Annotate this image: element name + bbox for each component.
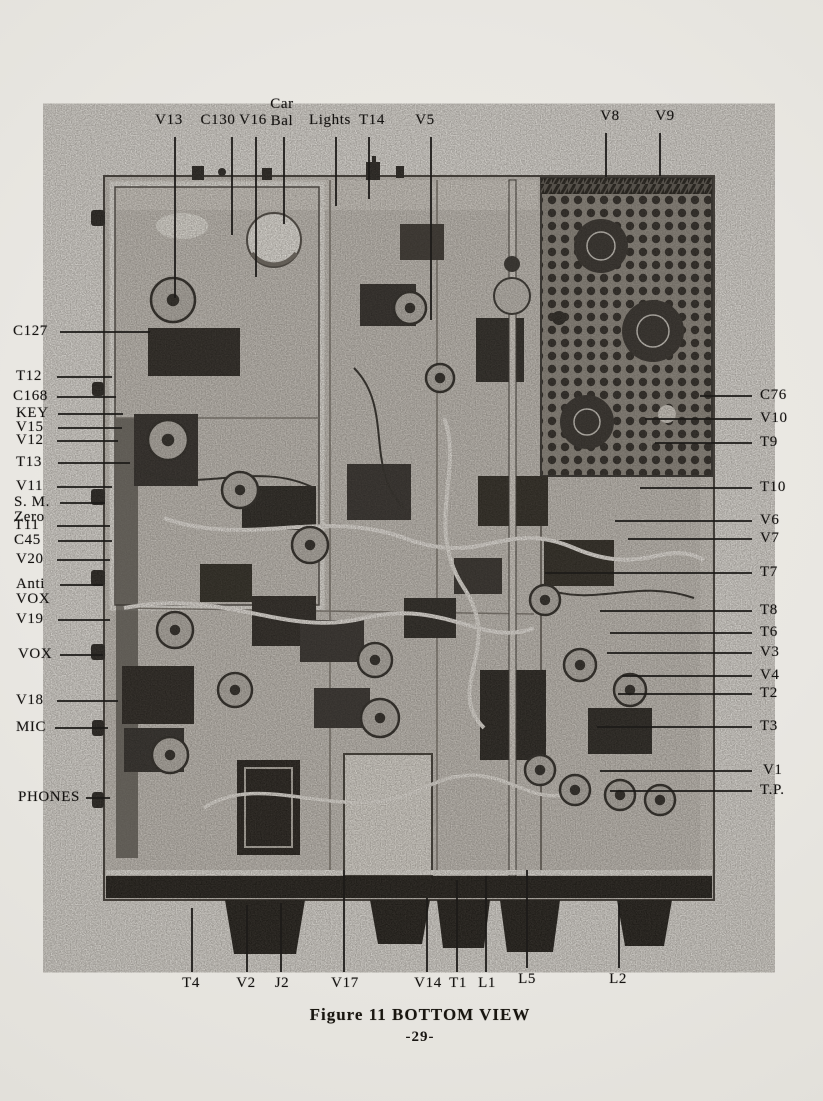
callout-car-bal: Car Bal — [270, 96, 293, 130]
callout-t14: T14 — [359, 113, 385, 128]
callout-v17: V17 — [331, 976, 359, 991]
callout-vox: VOX — [18, 647, 52, 662]
callout-t3: T3 — [760, 719, 778, 734]
chassis-photo — [104, 168, 716, 960]
callout-v14: V14 — [414, 976, 442, 991]
callout-t10: T10 — [760, 480, 786, 495]
callout-v16: V16 — [239, 113, 267, 128]
callout-l1: L1 — [478, 976, 496, 991]
callout-v7: V7 — [760, 531, 780, 546]
callout-c45: C45 — [14, 533, 41, 548]
callout-v13: V13 — [155, 113, 183, 128]
manual-scan-page: V13 C130 V16 Car Bal Lights T14 V5 V8 V9… — [0, 0, 823, 1101]
callout-t2: T2 — [760, 686, 778, 701]
callout-t1: T1 — [449, 976, 467, 991]
figure-caption: Figure 11 BOTTOM VIEW — [310, 1005, 531, 1025]
callout-c168: C168 — [13, 389, 48, 404]
callout-v4: V4 — [760, 668, 780, 683]
callout-t7: T7 — [760, 565, 778, 580]
callout-l2: L2 — [609, 972, 627, 987]
callout-tp: T.P. — [760, 783, 785, 798]
front-panel-knobs — [91, 210, 105, 808]
callout-v2: V2 — [236, 976, 256, 991]
callout-l5: L5 — [518, 972, 536, 987]
callout-v5: V5 — [415, 113, 435, 128]
callout-v12: V12 — [16, 433, 44, 448]
callout-v11: V11 — [16, 479, 43, 494]
callout-v3: V3 — [760, 645, 780, 660]
callout-t6: T6 — [760, 625, 778, 640]
page-number: -29- — [406, 1029, 435, 1046]
callout-v6: V6 — [760, 513, 780, 528]
callout-anti-vox: Anti VOX — [16, 577, 50, 607]
callout-c130: C130 — [201, 113, 236, 128]
callout-j2: J2 — [275, 976, 290, 991]
callout-v1: V1 — [763, 763, 783, 778]
callout-v20: V20 — [16, 552, 44, 567]
callout-v19: V19 — [16, 612, 44, 627]
callout-lights: Lights — [309, 113, 351, 128]
callout-t4: T4 — [182, 976, 200, 991]
callout-c127: C127 — [13, 324, 48, 339]
callout-v10: V10 — [760, 411, 788, 426]
callout-t8: T8 — [760, 603, 778, 618]
photo-grain — [104, 176, 714, 900]
callout-t11: T11 — [14, 518, 39, 533]
callout-t9: T9 — [760, 435, 778, 450]
callout-t13: T13 — [16, 455, 42, 470]
callout-phones: PHONES — [18, 790, 80, 805]
callout-c76: C76 — [760, 388, 787, 403]
callout-t12: T12 — [16, 369, 42, 384]
callout-v8: V8 — [600, 109, 620, 124]
callout-mic: MIC — [16, 720, 46, 735]
callout-v9: V9 — [655, 109, 675, 124]
callout-v18: V18 — [16, 693, 44, 708]
